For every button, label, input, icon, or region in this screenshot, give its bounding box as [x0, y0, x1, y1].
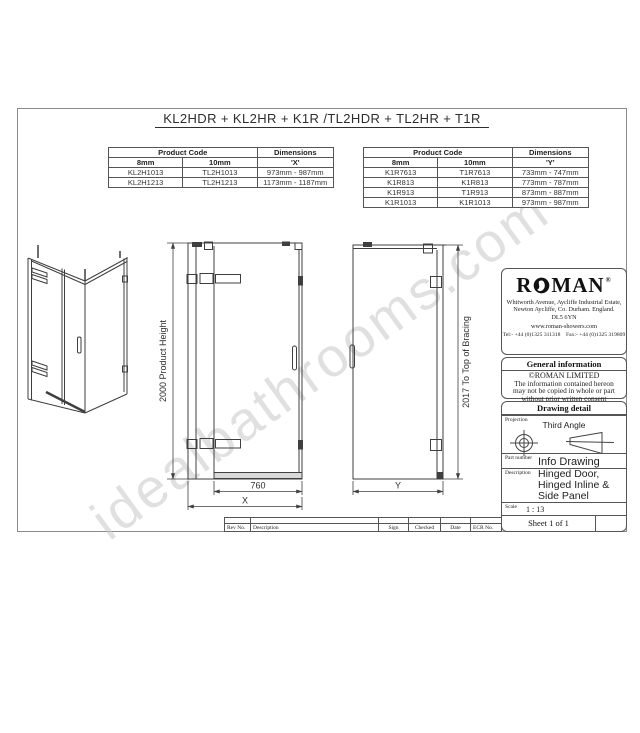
part-number-row: Part number Info Drawing: [502, 453, 626, 468]
column-header: 8mm: [109, 158, 183, 168]
table-row: K1R7613T1R7613733mm - 747mm: [364, 168, 589, 178]
copyright-notice: ©ROMAN LIMITED The information contained…: [502, 372, 626, 402]
scale-row: Scale 1 : 13: [502, 502, 626, 515]
sheet-row-spare-cell: [595, 516, 626, 531]
address-line: Whitworth Avenue, Aycliffe Industrial Es…: [502, 299, 626, 306]
table-cell: K1R1013: [438, 198, 512, 208]
roman-logo: R MAN ®: [502, 274, 626, 296]
table-cell: K1R913: [364, 188, 438, 198]
description-line: Side Panel: [538, 491, 626, 502]
table-cell: K1R7613: [364, 168, 438, 178]
table-row: K1R913T1R913873mm - 887mm: [364, 188, 589, 198]
table-cell: K1R1013: [364, 198, 438, 208]
roman-logo-cameo-icon: [533, 277, 550, 294]
sheet-number: Sheet 1 of 1: [502, 516, 595, 531]
column-header: 10mm: [438, 158, 512, 168]
table-cell: T1R7613: [438, 168, 512, 178]
column-header: 8mm: [364, 158, 438, 168]
logo-letters-man: MAN: [551, 273, 604, 298]
description-row: Description Hinged Door, Hinged Inline &…: [502, 468, 626, 502]
table-cell: K1R813: [364, 178, 438, 188]
column-header: 'Y': [512, 158, 589, 168]
table-row: KL2H1213TL2H12131173mm - 1187mm: [109, 178, 334, 188]
company-website: www.roman-showers.com: [502, 323, 626, 330]
table-cell: 1173mm - 1187mm: [257, 178, 334, 188]
scale-label: Scale: [505, 504, 517, 510]
column-header: Dimensions: [512, 148, 589, 158]
table-row: K1R1013K1R1013973mm - 987mm: [364, 198, 589, 208]
title-block-company: R MAN ® Whitworth Avenue, Aycliffe Indus…: [501, 268, 627, 355]
table-cell: TL2H1013: [183, 168, 257, 178]
table-row: KL2H1013TL2H1013973mm - 987mm: [109, 168, 334, 178]
column-header: Dimensions: [257, 148, 334, 158]
company-address: Whitworth Avenue, Aycliffe Industrial Es…: [502, 299, 626, 321]
rev-sign-header: Sign: [379, 524, 409, 532]
table-cell: KL2H1213: [109, 178, 183, 188]
company-telfax: Tel:- +44 (0)1325 311318 Fax:- +44 (0)13…: [502, 332, 626, 338]
drawing-title-text: KL2HDR + KL2HR + K1R /TL2HDR + TL2HR + T…: [155, 111, 489, 128]
table-cell: 733mm - 747mm: [512, 168, 589, 178]
projection-label: Projection: [505, 417, 528, 423]
title-block-general-info: General information ©ROMAN LIMITED The i…: [501, 357, 627, 399]
rev-ecr-header: ECR No.: [471, 524, 501, 532]
table-cell: KL2H1013: [109, 168, 183, 178]
table-cell: 873mm - 887mm: [512, 188, 589, 198]
sheet-row: Sheet 1 of 1: [502, 515, 626, 531]
column-header: 'X': [257, 158, 334, 168]
table-cell: TL2H1213: [183, 178, 257, 188]
rev-no-header: Rev No.: [225, 524, 251, 532]
column-header: Product Code: [364, 148, 513, 158]
column-header: 10mm: [183, 158, 257, 168]
drawing-detail-header: Drawing detail: [502, 402, 626, 415]
table-cell: T1R913: [438, 188, 512, 198]
revision-table: Rev No. Description Sign Checked Date EC…: [224, 517, 502, 532]
title-block-drawing-detail: Drawing detail Projection Third Angle Pa…: [501, 401, 627, 532]
table-cell: 973mm - 987mm: [512, 198, 589, 208]
rev-description-header: Description: [251, 524, 379, 532]
projection-row: Projection Third Angle: [502, 415, 626, 453]
part-number-label: Part number: [505, 455, 532, 461]
registered-mark: ®: [606, 276, 612, 284]
product-table-y: Product Code Dimensions 8mm 10mm 'Y' K1R…: [363, 147, 589, 208]
general-info-header: General information: [502, 358, 626, 371]
column-header: Product Code: [109, 148, 258, 158]
rev-date-header: Date: [441, 524, 471, 532]
table-cell: K1R813: [438, 178, 512, 188]
address-line: DL5 6YN: [502, 314, 626, 321]
logo-letter-r: R: [516, 273, 532, 298]
rev-checked-header: Checked: [409, 524, 441, 532]
table-cell: 973mm - 987mm: [257, 168, 334, 178]
table-row: K1R813K1R813773mm - 787mm: [364, 178, 589, 188]
description-label: Description: [505, 470, 531, 476]
page-title: KL2HDR + KL2HR + K1R /TL2HDR + TL2HR + T…: [17, 110, 627, 128]
product-table-x: Product Code Dimensions 8mm 10mm 'X' KL2…: [108, 147, 334, 188]
table-cell: 773mm - 787mm: [512, 178, 589, 188]
address-line: Newton Aycliffe, Co. Durham. England.: [502, 306, 626, 313]
scale-value: 1 : 13: [502, 505, 626, 514]
